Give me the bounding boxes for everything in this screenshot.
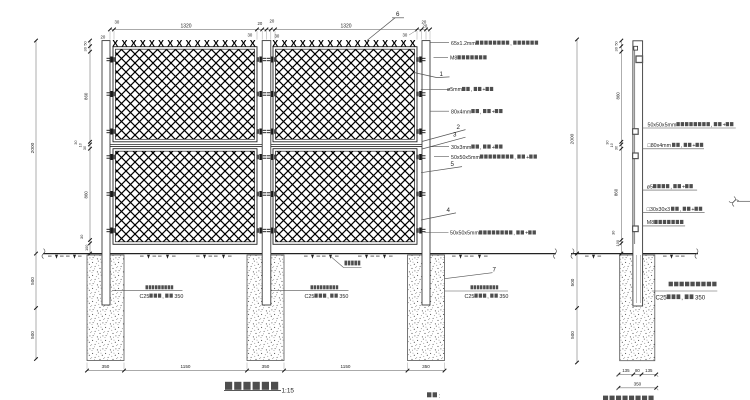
svg-text:100: 100 <box>615 239 620 246</box>
svg-text:30: 30 <box>115 20 120 25</box>
svg-text:1320: 1320 <box>340 24 351 30</box>
svg-text:350: 350 <box>174 294 183 300</box>
svg-text:50x50x5mm: 50x50x5mm <box>450 231 479 237</box>
svg-text:,: , <box>514 155 515 161</box>
svg-text:7: 7 <box>493 267 497 274</box>
svg-text:+: + <box>526 155 529 161</box>
svg-text:30: 30 <box>74 140 78 144</box>
svg-text:10: 10 <box>79 143 83 147</box>
svg-text:3: 3 <box>453 132 457 139</box>
svg-text:+: + <box>492 109 495 115</box>
svg-text:30x3mm: 30x3mm <box>451 145 472 151</box>
svg-text:30: 30 <box>275 34 280 39</box>
svg-text:860: 860 <box>84 191 89 199</box>
svg-text:1150: 1150 <box>341 364 351 369</box>
svg-text:500: 500 <box>570 278 575 286</box>
svg-text:,: , <box>471 87 472 93</box>
svg-text:50x50x5mm: 50x50x5mm <box>648 122 677 128</box>
svg-text:20: 20 <box>258 21 263 26</box>
svg-text:2000: 2000 <box>570 133 576 144</box>
svg-text:860: 860 <box>615 92 620 100</box>
svg-text:30: 30 <box>248 33 253 38</box>
svg-text:1320: 1320 <box>180 24 191 30</box>
svg-text:C25: C25 <box>140 294 150 300</box>
svg-text:20: 20 <box>101 35 106 40</box>
svg-text:,: , <box>680 207 681 213</box>
svg-text:,: , <box>513 231 514 237</box>
svg-text:1: 1 <box>440 71 444 78</box>
svg-text:80: 80 <box>635 368 640 373</box>
svg-text:,: , <box>670 184 671 190</box>
svg-text:1:15: 1:15 <box>282 388 295 395</box>
svg-text:ø5mm: ø5mm <box>447 87 463 93</box>
svg-text:350: 350 <box>262 364 270 369</box>
svg-text:30: 30 <box>83 146 87 150</box>
svg-text:860: 860 <box>84 92 89 100</box>
svg-text:+: + <box>691 207 694 213</box>
svg-text:860: 860 <box>613 188 618 196</box>
svg-text:350: 350 <box>695 295 706 302</box>
svg-text:M8: M8 <box>647 220 654 226</box>
svg-text:,: , <box>681 295 683 302</box>
svg-text:350: 350 <box>339 294 348 300</box>
svg-text:65x1.2mm: 65x1.2mm <box>451 41 476 47</box>
svg-text:,: , <box>480 109 481 115</box>
svg-text:500: 500 <box>30 331 35 339</box>
svg-text:,: , <box>681 143 682 149</box>
svg-text:C25: C25 <box>305 294 315 300</box>
svg-text:2: 2 <box>457 124 461 131</box>
svg-text:□80x4mm: □80x4mm <box>648 143 672 149</box>
svg-text:1150: 1150 <box>181 364 191 369</box>
svg-text:+: + <box>723 122 726 128</box>
svg-text:□30x30x3: □30x30x3 <box>647 207 670 213</box>
svg-text:30: 30 <box>614 146 618 150</box>
svg-text:C25: C25 <box>656 295 668 302</box>
svg-text:350: 350 <box>102 364 110 369</box>
svg-text:135: 135 <box>645 368 653 373</box>
svg-text:50x50x5mm: 50x50x5mm <box>451 155 480 161</box>
svg-text:500: 500 <box>570 331 575 339</box>
svg-text:500: 500 <box>30 277 35 285</box>
svg-text:XXXXXXXXXXXXXXXX: XXXXXXXXXXXXXXXX <box>272 39 418 49</box>
svg-text:5: 5 <box>451 161 455 168</box>
svg-text:20: 20 <box>270 18 275 23</box>
svg-text:XXXXXXXXXXXXXXXX: XXXXXXXXXXXXXXXX <box>112 39 258 49</box>
svg-text:,: , <box>711 122 712 128</box>
svg-text:M8: M8 <box>450 56 457 62</box>
svg-text:30: 30 <box>606 140 610 144</box>
svg-text:80x4mm: 80x4mm <box>451 109 472 115</box>
svg-text:,: , <box>480 145 481 151</box>
svg-text:2000: 2000 <box>30 142 36 153</box>
svg-text:4: 4 <box>447 207 451 214</box>
svg-text:C25: C25 <box>465 294 475 300</box>
svg-text:+: + <box>525 231 528 237</box>
svg-text:135: 135 <box>622 368 630 373</box>
svg-text:6: 6 <box>396 11 400 18</box>
svg-text:+: + <box>682 184 685 190</box>
svg-text:+: + <box>492 145 495 151</box>
svg-text:350: 350 <box>634 381 642 386</box>
svg-text:20: 20 <box>423 23 428 28</box>
svg-text:,: , <box>510 41 511 47</box>
svg-text:ø5: ø5 <box>647 184 653 190</box>
svg-text:350: 350 <box>499 294 508 300</box>
svg-text:+: + <box>482 87 485 93</box>
svg-text:350: 350 <box>422 364 430 369</box>
svg-text:30: 30 <box>403 33 408 38</box>
svg-text:+: + <box>692 143 695 149</box>
svg-text:100: 100 <box>84 244 89 251</box>
